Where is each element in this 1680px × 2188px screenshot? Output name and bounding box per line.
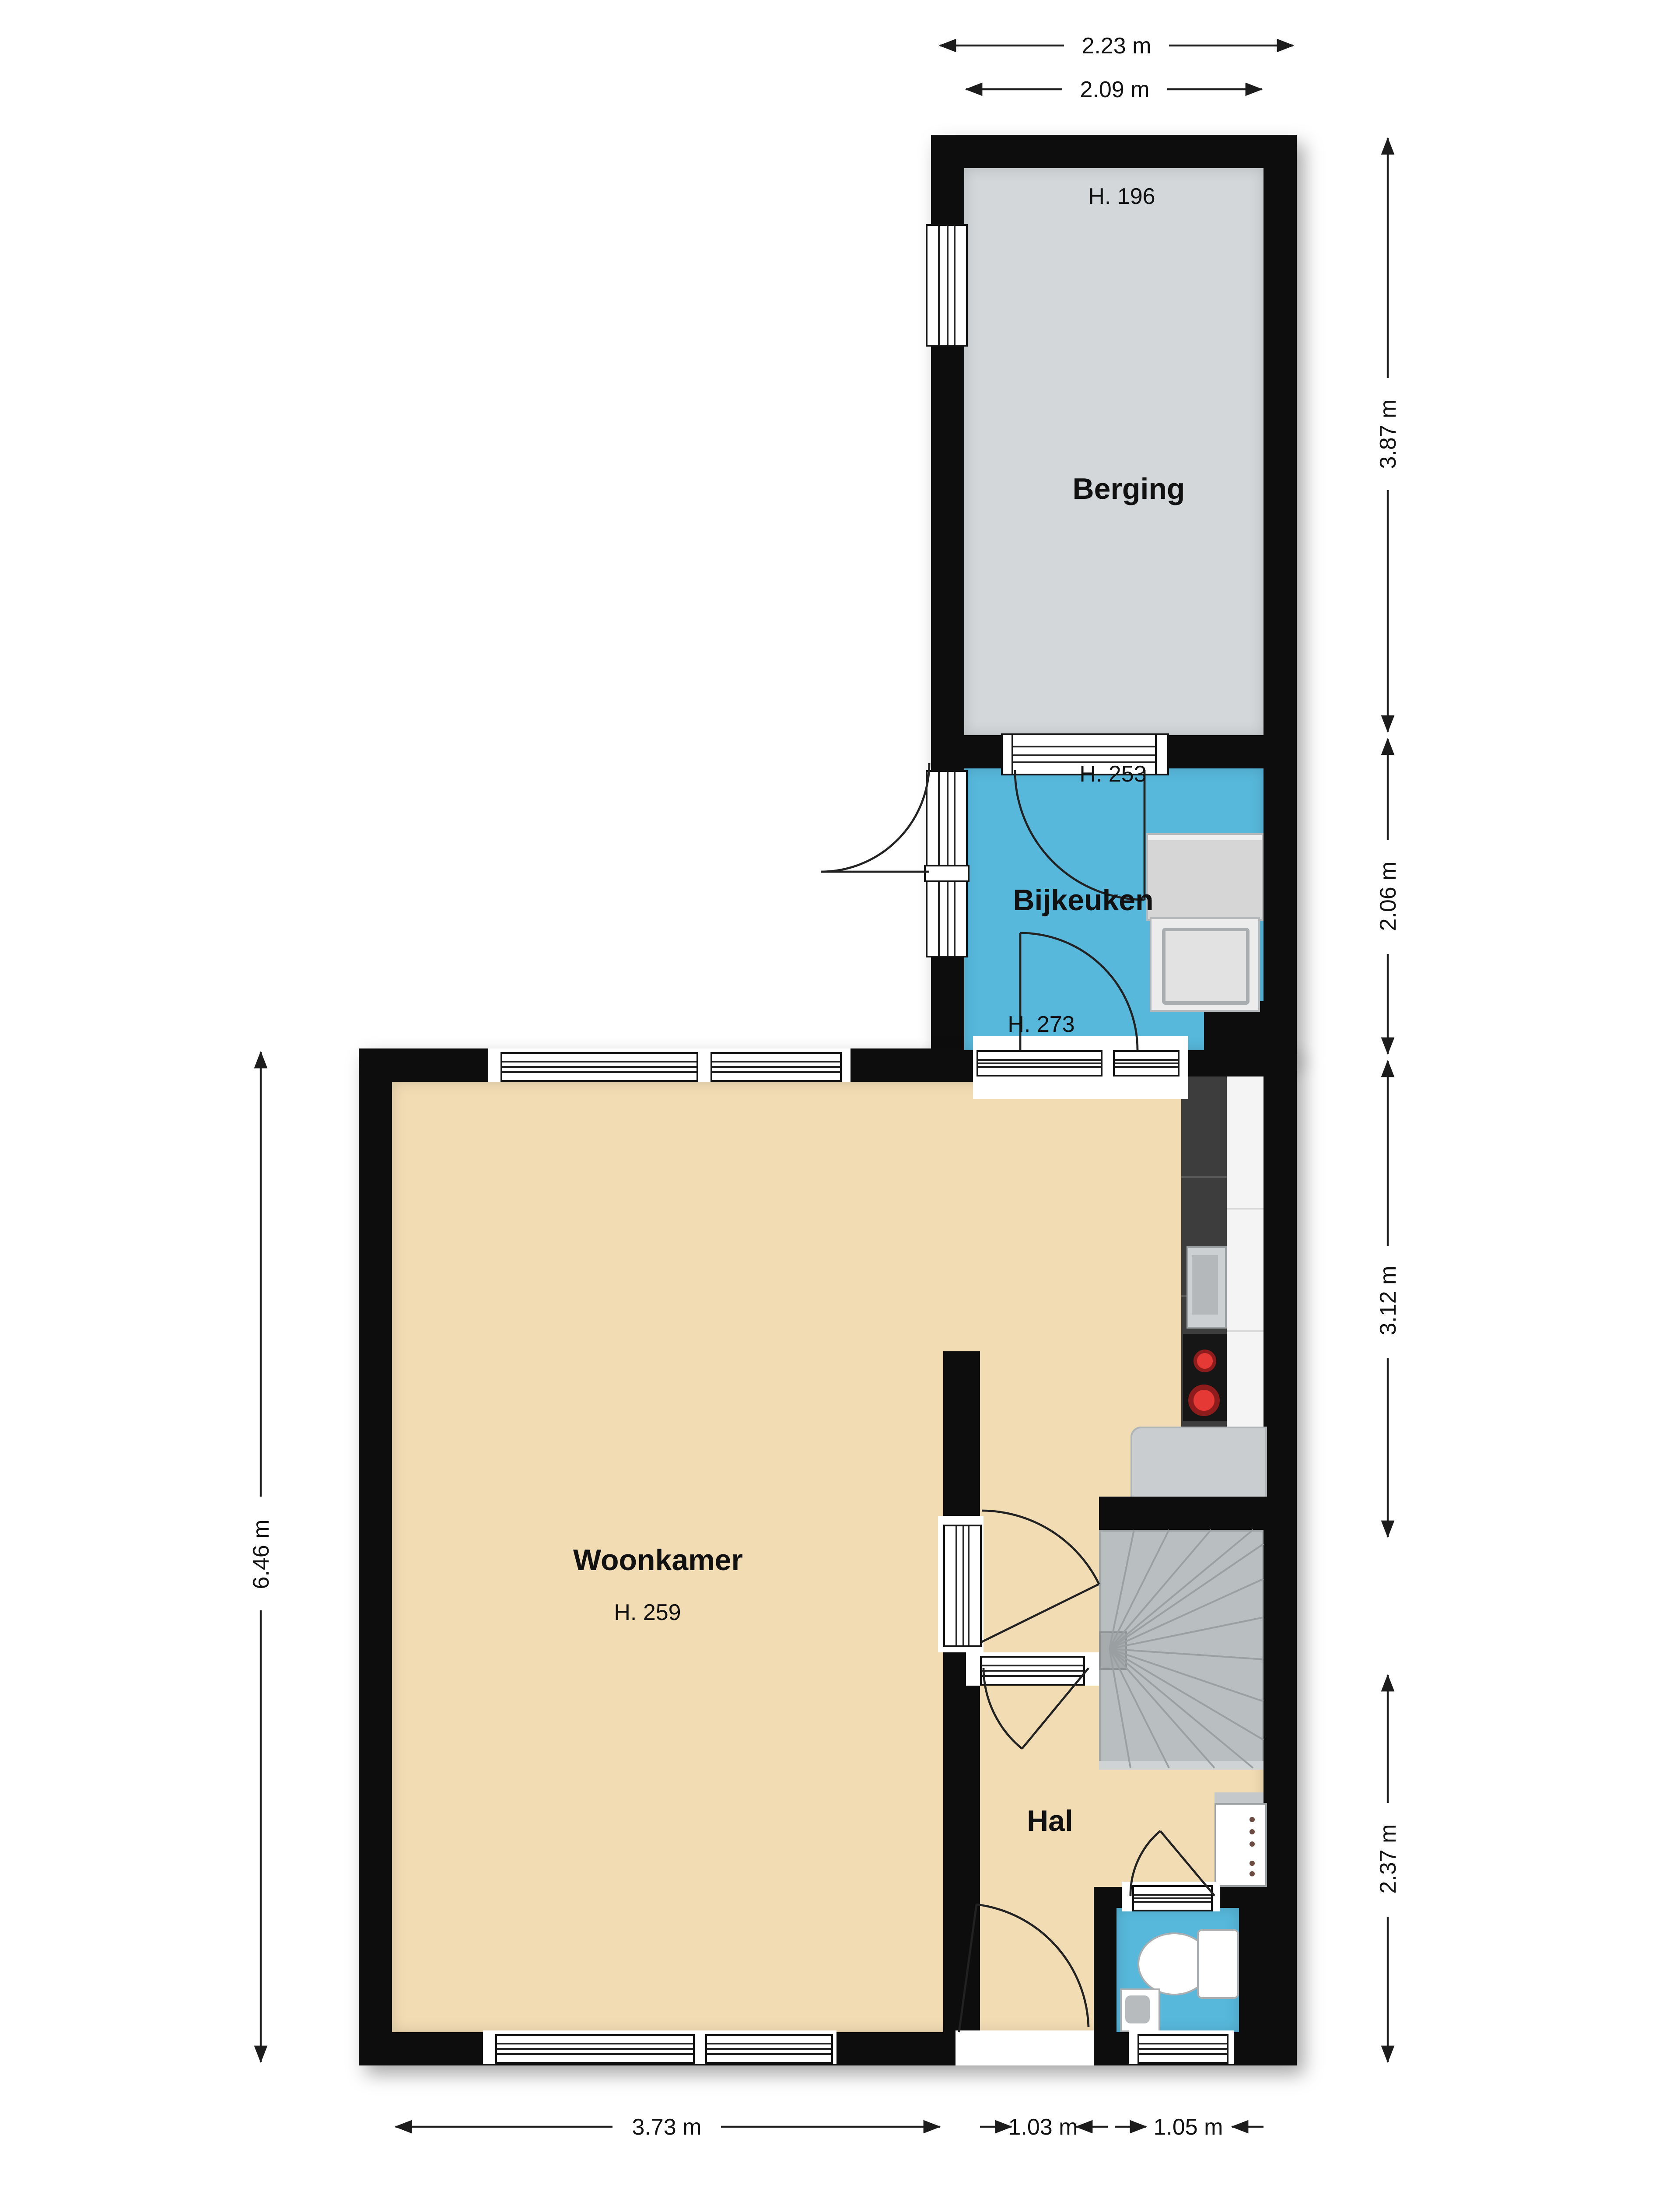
- dim-right-bijkeuken: 2.06 m: [1375, 862, 1401, 931]
- door-bijkeuken-exterior-hinge-jamb: [924, 865, 969, 882]
- door-toilet: [1132, 1885, 1213, 1911]
- window-bijkeuken-bottom: [1113, 1050, 1179, 1076]
- dim-bottom-woonkamer: 3.73 m: [632, 2114, 702, 2140]
- dim-left-woonkamer: 6.46 m: [248, 1520, 274, 1589]
- wall-partition-upper: [943, 1351, 980, 1523]
- doorbell-dot: [1249, 1817, 1255, 1822]
- wall-partition-lower: [943, 1684, 980, 2032]
- front-door-opening: [955, 2030, 1094, 2065]
- dim-right-kitchen: 3.12 m: [1375, 1266, 1401, 1336]
- wall-toilet-left: [1094, 1887, 1116, 2032]
- woonkamer-name-label: Woonkamer: [573, 1544, 743, 1579]
- doorbell-dot: [1249, 1871, 1255, 1876]
- doorbell-dot: [1249, 1829, 1255, 1834]
- berging-name-label: Berging: [1073, 473, 1185, 508]
- window-woonkamer-top-left: [500, 1052, 698, 1082]
- cooktop-burner-small: [1193, 1350, 1216, 1372]
- window-berging-left: [926, 224, 968, 347]
- toilet-sink-basin: [1125, 1995, 1150, 2023]
- bijkeuken-name-label: Bijkeuken: [1013, 884, 1153, 919]
- room-berging: [964, 168, 1263, 735]
- door-corridor: [980, 1656, 1085, 1686]
- meter-cupboard-top: [1214, 1792, 1263, 1803]
- woonkamer-height-label: H. 259: [614, 1599, 681, 1625]
- door-bijkeuken-exterior-glazing: [926, 770, 968, 957]
- dim-bottom-toilet: 1.05 m: [1154, 2114, 1223, 2140]
- berging-height-label: H. 196: [1088, 183, 1155, 209]
- toilet-tank: [1197, 1929, 1239, 1999]
- hal-name-label: Hal: [1027, 1805, 1073, 1840]
- wall-toilet-right: [1239, 1887, 1263, 2032]
- dim-top-inner: 2.09 m: [1080, 76, 1150, 102]
- window-woonkamer-top-right: [710, 1052, 842, 1082]
- doorbell-dot: [1249, 1841, 1255, 1847]
- door-berging-jamb-right: [1155, 733, 1169, 775]
- window-woonkamer-bottom-right: [705, 2034, 833, 2064]
- washer: [1146, 833, 1263, 921]
- cooktop-burner-large: [1188, 1385, 1220, 1416]
- window-toilet-bottom: [1137, 2034, 1228, 2064]
- stairs-newel-post: [1099, 1631, 1127, 1670]
- floorplan-page: H. 196 Berging H. 253 Bijkeuken H. 273 W…: [0, 0, 1680, 2188]
- bijkeuken-height-top: H. 253: [1079, 761, 1146, 787]
- dim-top-outer: 2.23 m: [1082, 32, 1151, 59]
- dim-bottom-hal: 1.03 m: [1008, 2114, 1078, 2140]
- door-bijkeuken-exterior-swing: [821, 763, 929, 872]
- stairs-bottom-edge: [1099, 1761, 1263, 1770]
- kitchen-counter-light: [1227, 1076, 1263, 1427]
- window-woonkamer-bottom-left: [495, 2034, 695, 2064]
- wall-kitchen-stub: [1099, 1497, 1297, 1530]
- dryer-door: [1162, 928, 1249, 1005]
- doorbell-dot: [1249, 1861, 1255, 1866]
- kitchen-sink-basin: [1192, 1255, 1218, 1315]
- meter-cupboard: [1214, 1803, 1267, 1887]
- door-bijkeuken-woonkamer: [976, 1050, 1102, 1076]
- bijkeuken-height-bottom: H. 273: [1008, 1011, 1074, 1037]
- fridge: [1130, 1427, 1267, 1500]
- door-partition-glazed: [943, 1525, 982, 1647]
- dim-right-hal: 2.37 m: [1375, 1824, 1401, 1894]
- dim-right-berging: 3.87 m: [1375, 400, 1401, 469]
